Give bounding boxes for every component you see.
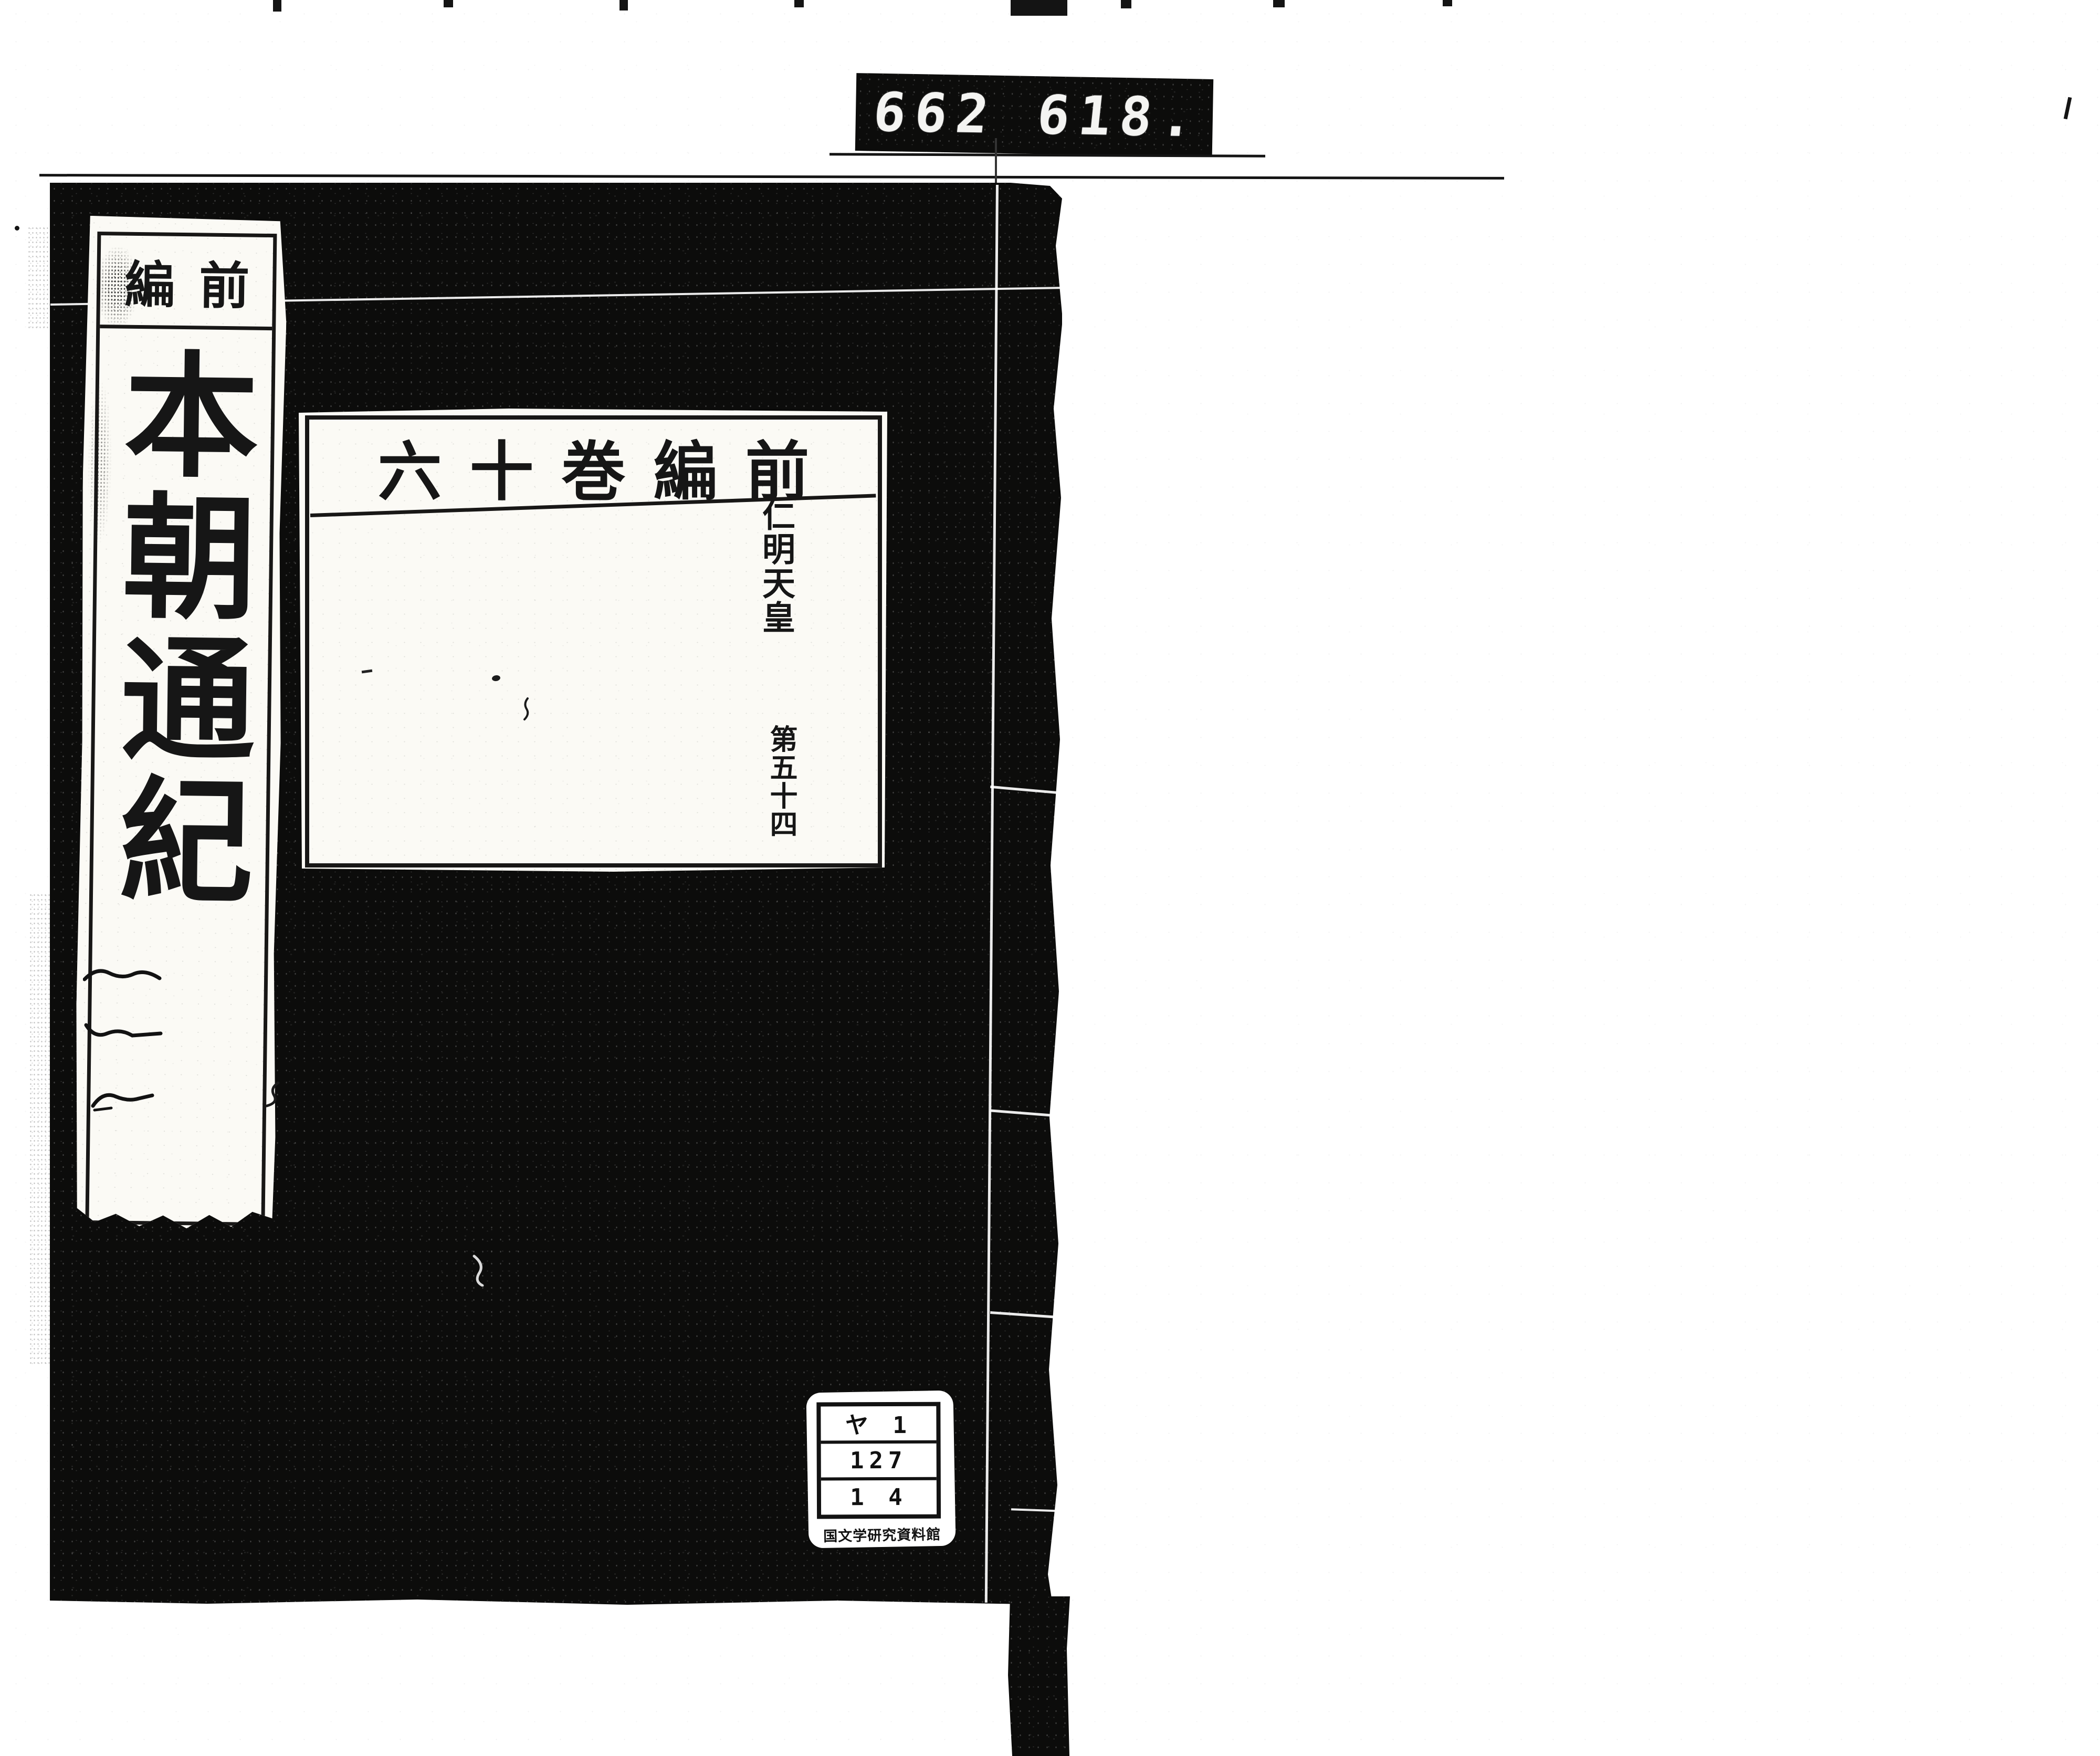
thread-mark-icon xyxy=(84,1018,163,1043)
header-char: 編 xyxy=(124,244,175,317)
institution-name: 国文学研究資料館 xyxy=(814,1523,951,1546)
film-edge-tick xyxy=(273,0,281,12)
slip-title-text: 本朝通紀 xyxy=(107,344,248,913)
film-edge-tick xyxy=(619,0,628,11)
scan-fuzz xyxy=(29,893,51,1365)
header-char: 巻 xyxy=(562,420,626,513)
fold-connector-line xyxy=(995,138,997,185)
film-edge-bar xyxy=(1011,0,1067,16)
volume-label: 前編巻十六 仁明天皇 第五十四 xyxy=(299,409,887,872)
thread-mark-icon xyxy=(90,1085,154,1112)
scan-fuzz xyxy=(27,226,50,331)
film-edge-tick xyxy=(1273,0,1285,7)
microfilm-scan-page: 662 618. 前編 本朝通紀 xyxy=(0,0,2100,1756)
spine-strip xyxy=(1007,1596,1070,1756)
frame-counter-right-digits: 618. xyxy=(1034,84,1205,149)
ink-curl-mark xyxy=(261,1081,283,1108)
frame-counter-left-digits: 662 xyxy=(870,81,1001,145)
stray-speck xyxy=(15,226,19,231)
film-frame-counter: 662 618. xyxy=(855,73,1213,157)
title-slip: 前編 本朝通紀 xyxy=(73,216,288,1234)
film-edge-tick xyxy=(1121,0,1131,8)
film-edge-tick xyxy=(1443,0,1452,6)
film-edge-tick xyxy=(794,0,804,7)
call-number-row-1: ヤ 1 xyxy=(821,1406,936,1444)
call-number-table: ヤ 1 127 1 4 xyxy=(816,1402,941,1519)
film-edge-dash xyxy=(2064,97,2072,120)
thread-mark-icon xyxy=(83,964,162,986)
call-number-sticker: ヤ 1 127 1 4 国文学研究資料館 xyxy=(806,1391,955,1549)
header-char: 六 xyxy=(378,420,442,513)
emperor-name-text: 仁明天皇 xyxy=(760,498,793,634)
slip-series-header: 前編 xyxy=(100,235,273,330)
call-number-row-3: 1 4 xyxy=(821,1480,937,1514)
volume-number-text: 第五十四 xyxy=(768,725,795,838)
film-edge-tick xyxy=(444,0,453,7)
label-series-header: 前編巻十六 xyxy=(316,430,871,503)
call-number-row-2: 127 xyxy=(821,1443,937,1480)
top-rule-line xyxy=(39,174,1504,180)
header-char: 前 xyxy=(198,245,250,318)
white-crease-curl xyxy=(469,1254,491,1287)
header-char: 編 xyxy=(654,420,718,513)
ink-squiggle xyxy=(521,697,532,720)
header-char: 十 xyxy=(470,420,534,513)
